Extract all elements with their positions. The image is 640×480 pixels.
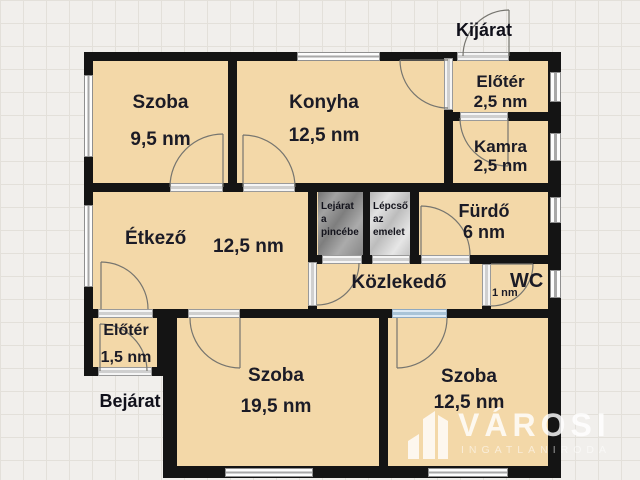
watermark-brand: VÁROSI: [458, 407, 611, 444]
watermark-subtitle: INGATLANIRODA: [461, 444, 611, 456]
floor-plan: Lejárat a pincébe Lépcső az emelet: [0, 0, 640, 480]
